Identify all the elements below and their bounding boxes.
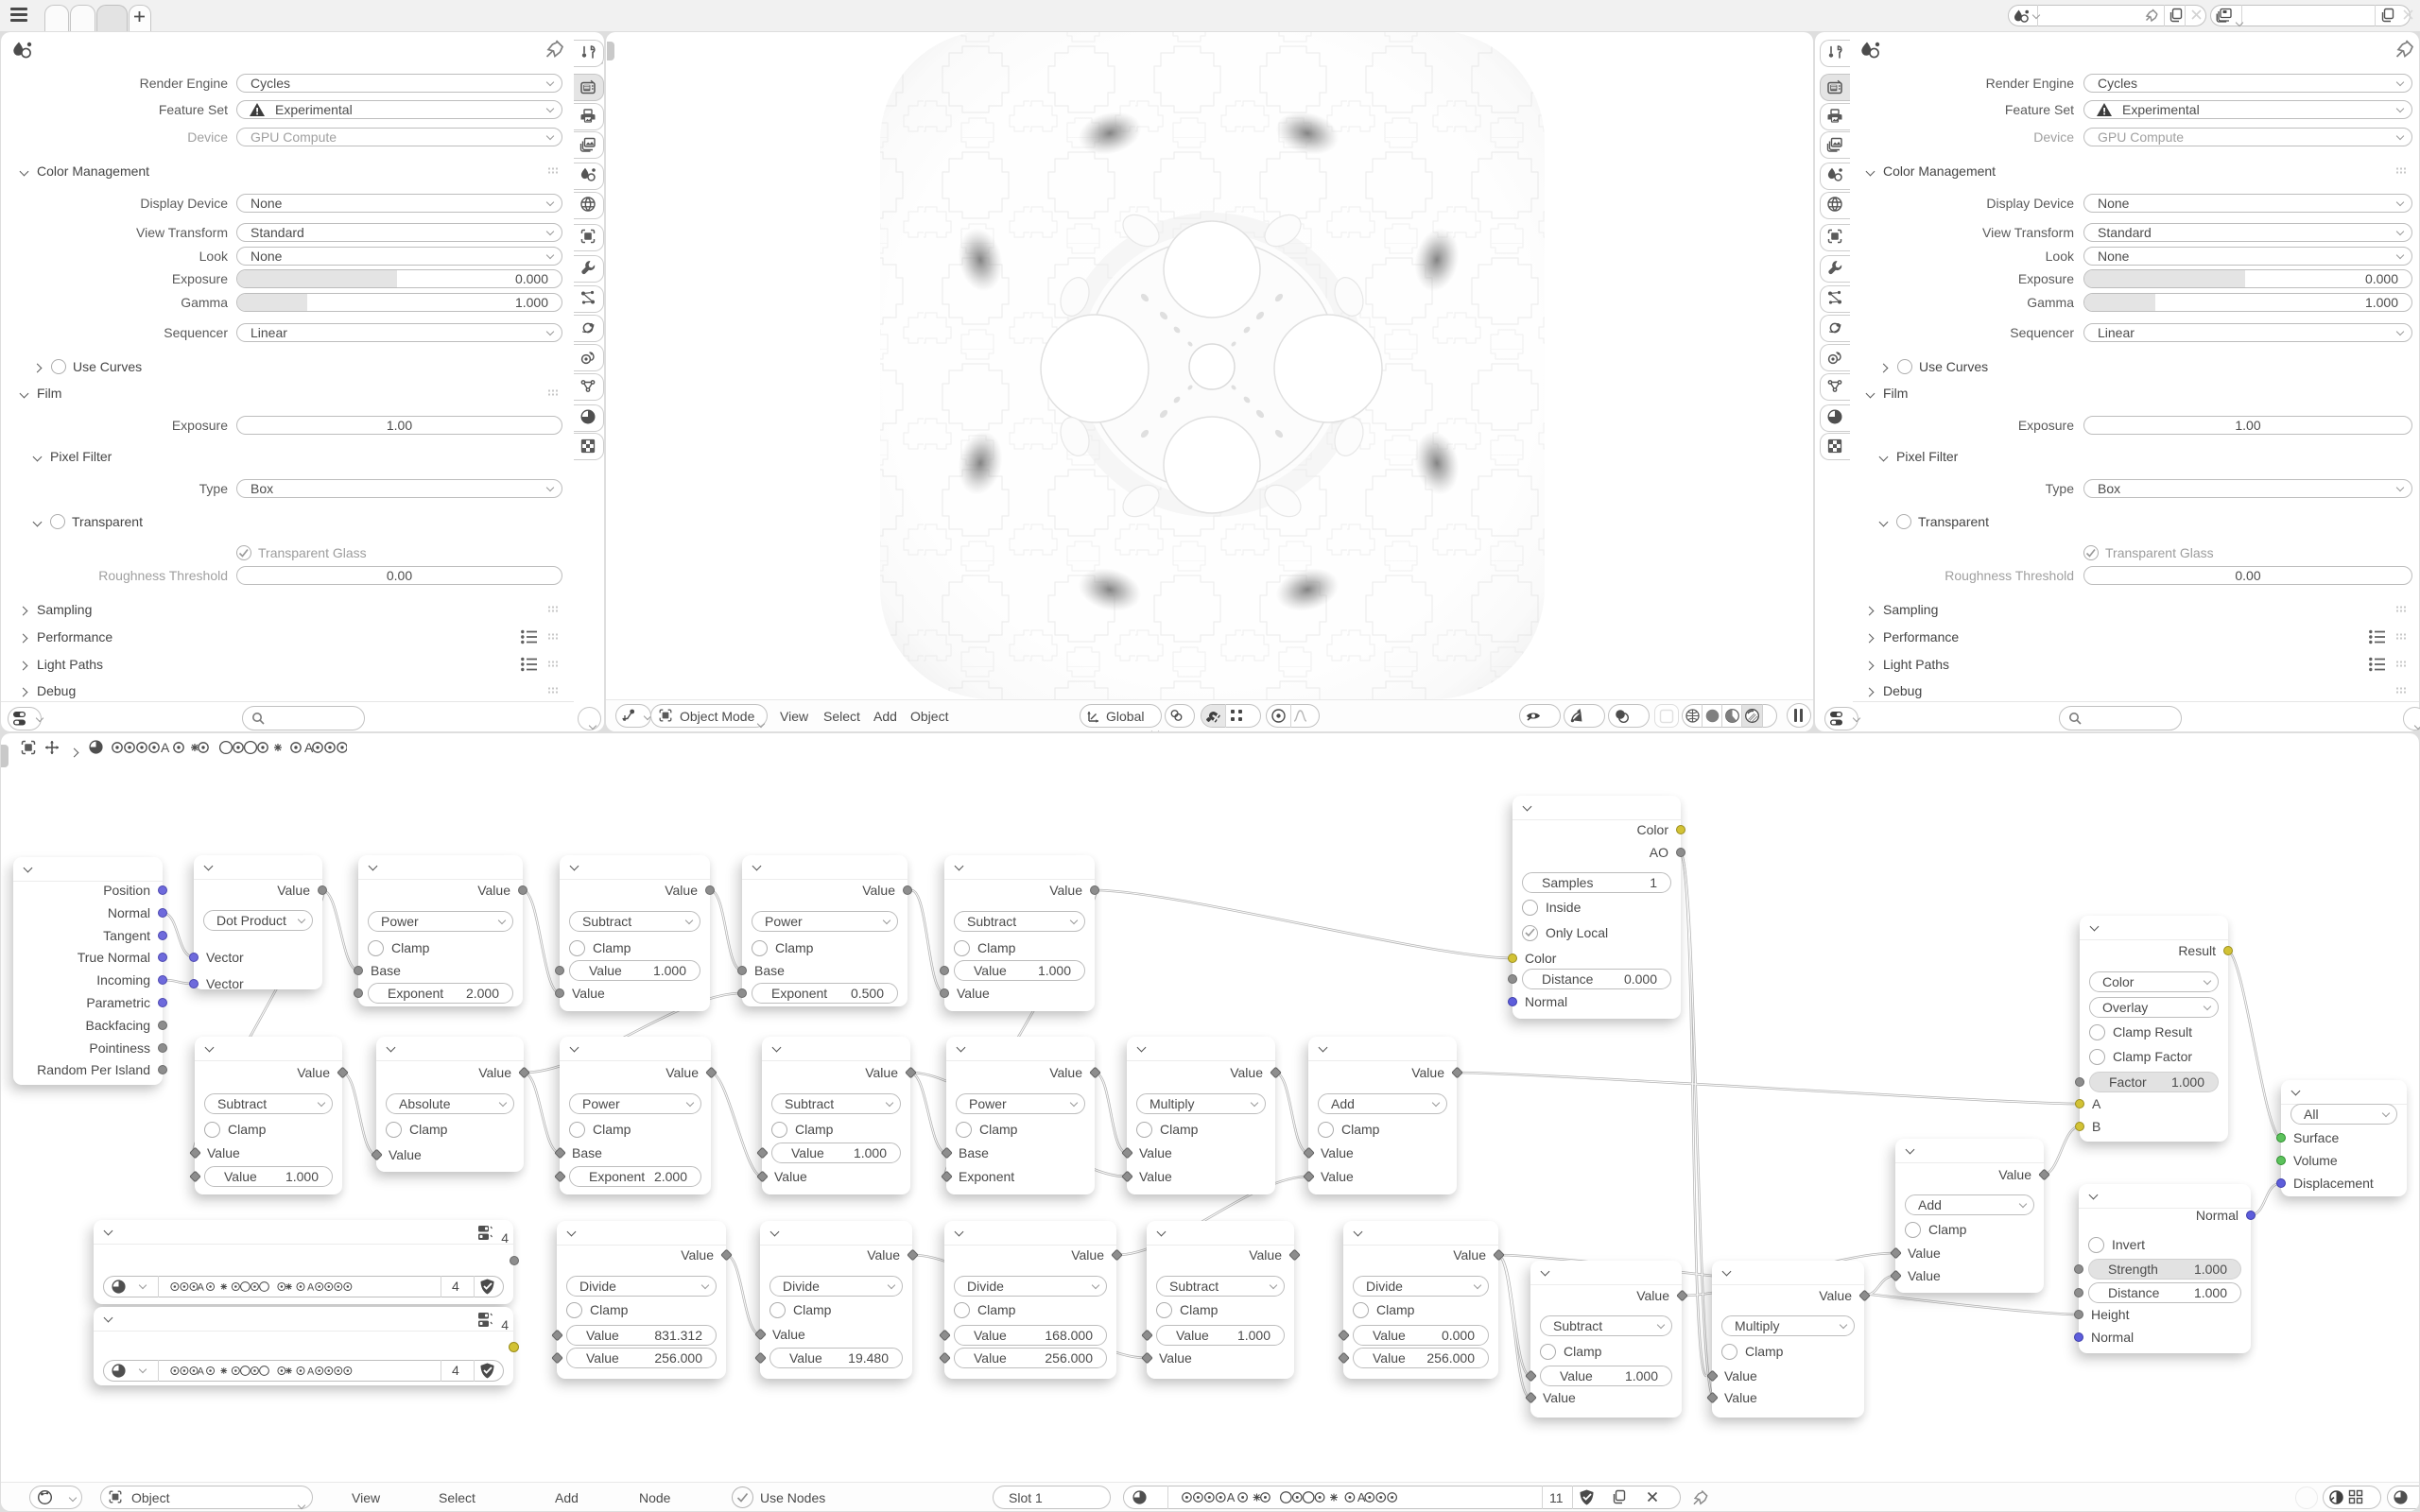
svg-text:A: A (304, 740, 314, 755)
svg-text:A: A (161, 740, 170, 755)
